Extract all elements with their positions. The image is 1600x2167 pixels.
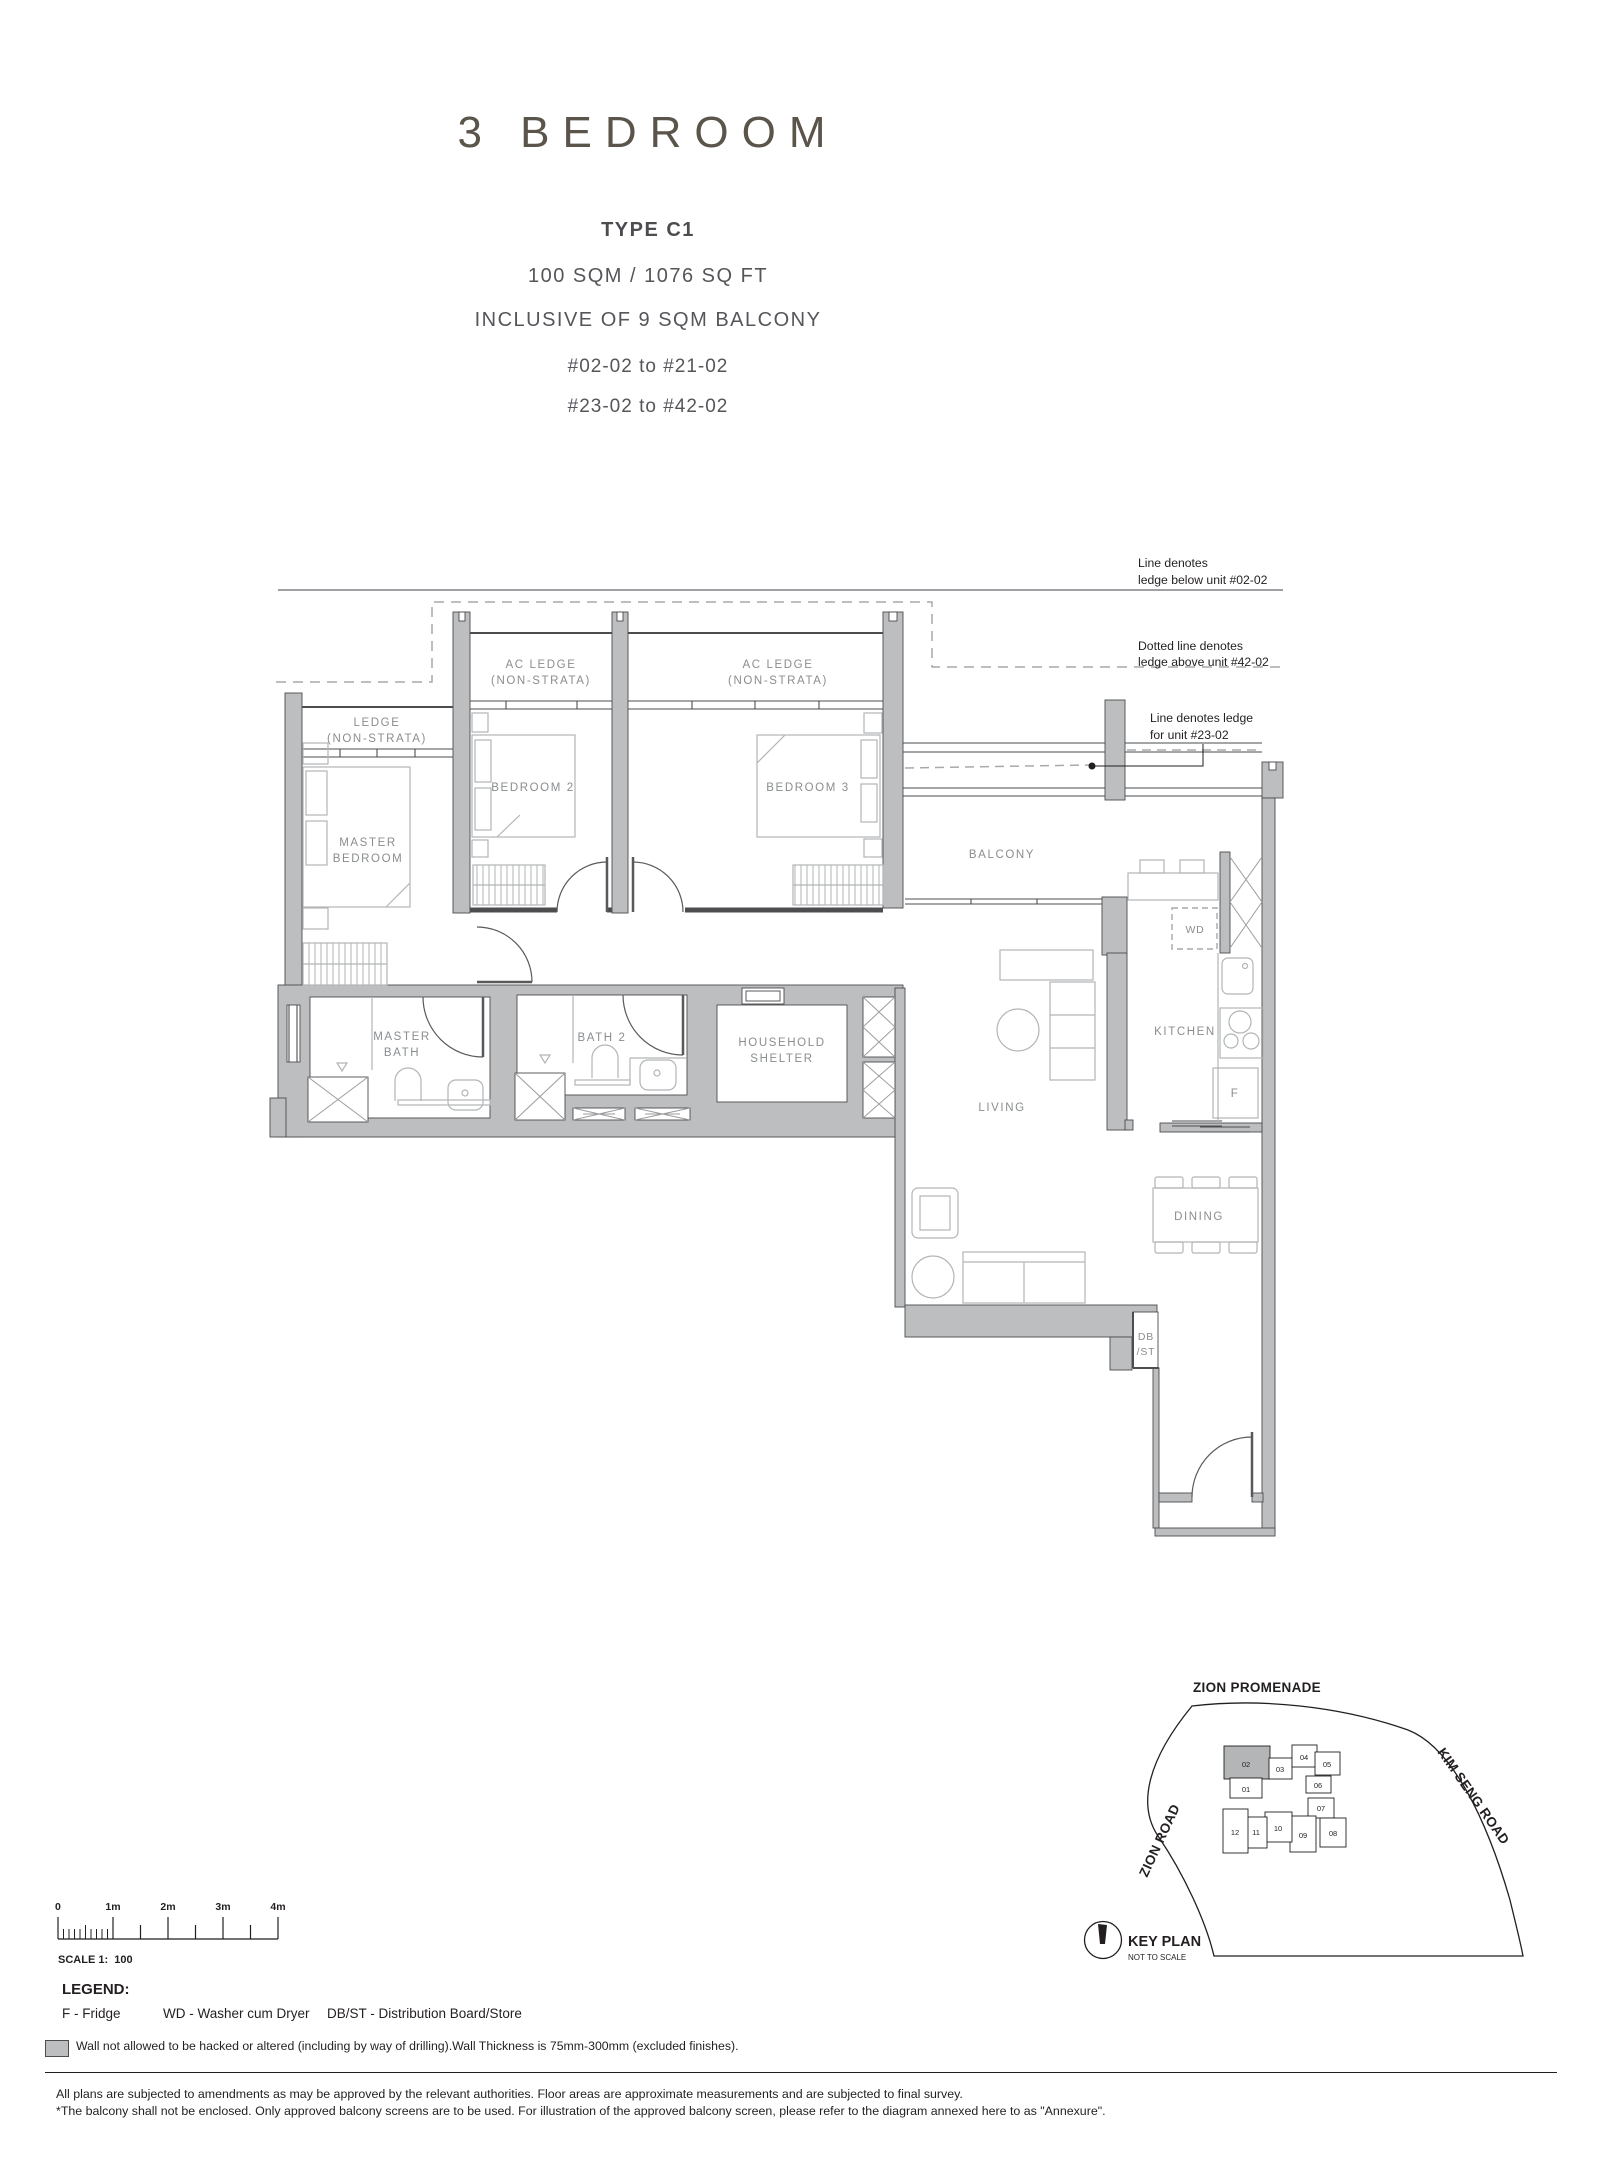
- bedroom-2-label: BEDROOM 2: [491, 782, 574, 794]
- scale-bar: 0 1m 2m 3m 4m SCALE 1: 100: [55, 1901, 286, 1966]
- household-shelter-label: HOUSEHOLD: [738, 1037, 825, 1049]
- key-plan-subtitle: NOT TO SCALE: [1128, 1953, 1186, 1962]
- legend-title: LEGEND:: [62, 1981, 130, 1998]
- svg-text:BEDROOM: BEDROOM: [333, 853, 404, 865]
- dining-label: DINING: [1174, 1211, 1224, 1223]
- svg-text:03: 03: [1276, 1765, 1284, 1774]
- svg-text:04: 04: [1300, 1753, 1308, 1762]
- svg-text:SHELTER: SHELTER: [750, 1053, 813, 1065]
- svg-text:(NON-STRATA): (NON-STRATA): [728, 675, 828, 687]
- wd-label: WD: [1185, 924, 1204, 936]
- svg-text:06: 06: [1314, 1781, 1322, 1790]
- svg-text:09: 09: [1299, 1831, 1307, 1840]
- kitchen-label: KITCHEN: [1154, 1026, 1216, 1038]
- svg-text:08: 08: [1329, 1829, 1337, 1838]
- bedroom-3-label: BEDROOM 3: [766, 782, 849, 794]
- svg-text:4m: 4m: [270, 1901, 285, 1913]
- svg-text:3m: 3m: [215, 1901, 230, 1913]
- svg-text:1m: 1m: [105, 1901, 120, 1913]
- svg-text:0: 0: [55, 1901, 61, 1913]
- svg-text:/ST: /ST: [1137, 1346, 1156, 1358]
- svg-text:11: 11: [1252, 1828, 1260, 1837]
- dbst-label: DB: [1138, 1331, 1154, 1343]
- balcony-label: BALCONY: [969, 849, 1035, 861]
- svg-text:(NON-STRATA): (NON-STRATA): [327, 733, 427, 745]
- footer-disclaimer-2: *The balcony shall not be enclosed. Only…: [56, 2104, 1106, 2118]
- svg-text:02: 02: [1242, 1760, 1250, 1769]
- road-zion-promenade: ZION PROMENADE: [1193, 1680, 1321, 1695]
- annotation-ledge-above: Dotted line denotes: [1138, 639, 1243, 653]
- svg-text:10: 10: [1274, 1824, 1282, 1833]
- floor-plan-drawing: LEDGE (NON-STRATA) AC LEDGE (NON-STRATA)…: [0, 0, 1600, 2167]
- footer-disclaimer-1: All plans are subjected to amendments as…: [56, 2087, 963, 2101]
- svg-text:12: 12: [1231, 1828, 1239, 1837]
- svg-text:for unit #23-02: for unit #23-02: [1150, 728, 1229, 742]
- doors: [423, 857, 1252, 1497]
- ac-ledge-2-label: AC LEDGE: [743, 659, 814, 671]
- road-zion: ZION ROAD: [1136, 1802, 1183, 1879]
- svg-text:05: 05: [1323, 1760, 1331, 1769]
- legend-item-fridge: F - Fridge: [62, 2006, 121, 2021]
- key-plan: ZION PROMENADE KIM SENG ROAD ZION ROAD 0…: [1085, 1680, 1524, 1962]
- fridge-label: F: [1231, 1088, 1240, 1100]
- svg-text:(NON-STRATA): (NON-STRATA): [491, 675, 591, 687]
- master-bath-label: MASTER: [373, 1031, 431, 1043]
- ledge-reference-lines: [276, 590, 1283, 796]
- svg-text:ledge below unit #02-02: ledge below unit #02-02: [1138, 573, 1268, 587]
- key-plan-title: KEY PLAN: [1128, 1934, 1201, 1950]
- master-bedroom-label: MASTER: [339, 837, 397, 849]
- wall-legend-swatch: [45, 2040, 69, 2057]
- annotation-ledge-below: Line denotes: [1138, 556, 1208, 570]
- footer-divider: [45, 2072, 1557, 2073]
- living-label: LIVING: [978, 1102, 1025, 1114]
- ledge-label: LEDGE: [354, 717, 401, 729]
- bath-2-label: BATH 2: [577, 1032, 626, 1044]
- road-kim-seng: KIM SENG ROAD: [1435, 1745, 1513, 1847]
- scale-text: SCALE 1: 100: [58, 1954, 133, 1966]
- legend-item-wd: WD - Washer cum Dryer: [163, 2006, 310, 2021]
- floorplan-brochure-page: { "header": { "title": "3 BEDROOM", "typ…: [0, 0, 1600, 2167]
- svg-text:2m: 2m: [160, 1901, 175, 1913]
- wall-note: Wall not allowed to be hacked or altered…: [76, 2039, 739, 2053]
- annotation-ledge-for: Line denotes ledge: [1150, 711, 1253, 725]
- svg-text:BATH: BATH: [384, 1047, 420, 1059]
- ac-ledge-1-label: AC LEDGE: [506, 659, 577, 671]
- legend-item-dbst: DB/ST - Distribution Board/Store: [327, 2006, 522, 2021]
- svg-text:07: 07: [1317, 1804, 1325, 1813]
- svg-text:01: 01: [1242, 1785, 1250, 1794]
- svg-text:ledge above unit #42-02: ledge above unit #42-02: [1138, 655, 1269, 669]
